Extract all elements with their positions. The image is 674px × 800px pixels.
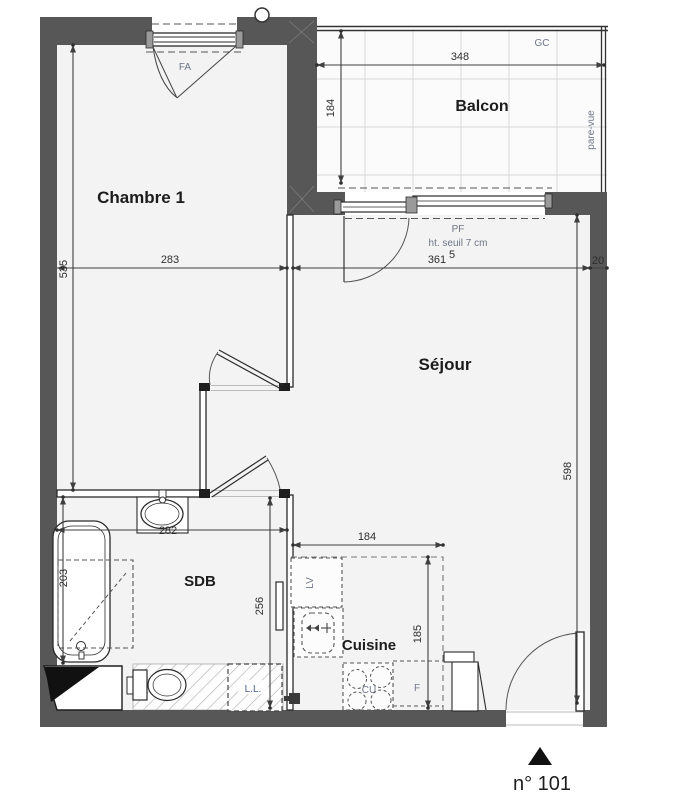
annotation-lv: LV (305, 577, 316, 589)
wall-balcony-left-column (287, 45, 317, 215)
entrance-marker-triangle (528, 747, 552, 765)
dim-361-superscript: 5 (449, 249, 455, 261)
wall-bottom-left (40, 710, 506, 727)
vent-circle (255, 8, 269, 22)
annotation-f: F (414, 683, 420, 694)
partition-hall-chambre (200, 390, 206, 492)
floor-plan-page: 535 283 361 5 20 348 184 598 282 203 256… (0, 0, 674, 800)
partition-chambre-sejour (287, 215, 293, 387)
towel-radiator (276, 582, 283, 630)
dim-184-cuisine: 184 (358, 531, 376, 543)
dim-256: 256 (254, 597, 266, 615)
dim-20: 20 (592, 255, 604, 267)
wall-top-left (40, 17, 152, 45)
dim-282: 282 (159, 525, 177, 537)
annotation-pf: PF (452, 224, 465, 235)
dim-361: 361 (428, 254, 446, 266)
balcony-railing (308, 27, 608, 31)
annotation-pare-vue: pare-vue (586, 110, 597, 150)
wall-top-right (237, 17, 317, 45)
bathtub-faucet (77, 642, 86, 651)
room-label-balcon: Balcon (455, 98, 508, 115)
annotation-seuil: ht. seuil 7 cm (429, 238, 488, 249)
wall-right (590, 192, 607, 727)
room-label-sdb: SDB (184, 573, 216, 590)
dim-535: 535 (58, 260, 70, 278)
room-label-cuisine: Cuisine (342, 637, 396, 654)
kitchen-sink (294, 608, 343, 657)
annotation-fa: FA (179, 62, 192, 73)
dim-203: 203 (58, 569, 70, 587)
room-label-sejour: Séjour (419, 355, 472, 374)
dim-283: 283 (161, 254, 179, 266)
floor-plan-drawing: 535 283 361 5 20 348 184 598 282 203 256… (0, 0, 674, 800)
entrance-opening (506, 710, 583, 727)
dim-348: 348 (451, 51, 469, 63)
dim-185: 185 (412, 625, 424, 643)
wall-bottom-right (583, 710, 607, 727)
technical-shaft (44, 666, 122, 710)
room-label-chambre1: Chambre 1 (97, 188, 185, 207)
annotation-gc: GC (535, 38, 550, 49)
partition-sdb-top (57, 490, 201, 497)
dim-598: 598 (562, 462, 574, 480)
dishwasher (291, 558, 342, 607)
dim-184-balcon: 184 (325, 99, 337, 117)
unit-number: n° 101 (513, 773, 571, 795)
annotation-cu: CU (362, 685, 376, 696)
annotation-ll: L.L. (245, 684, 262, 695)
toilet (127, 670, 186, 701)
